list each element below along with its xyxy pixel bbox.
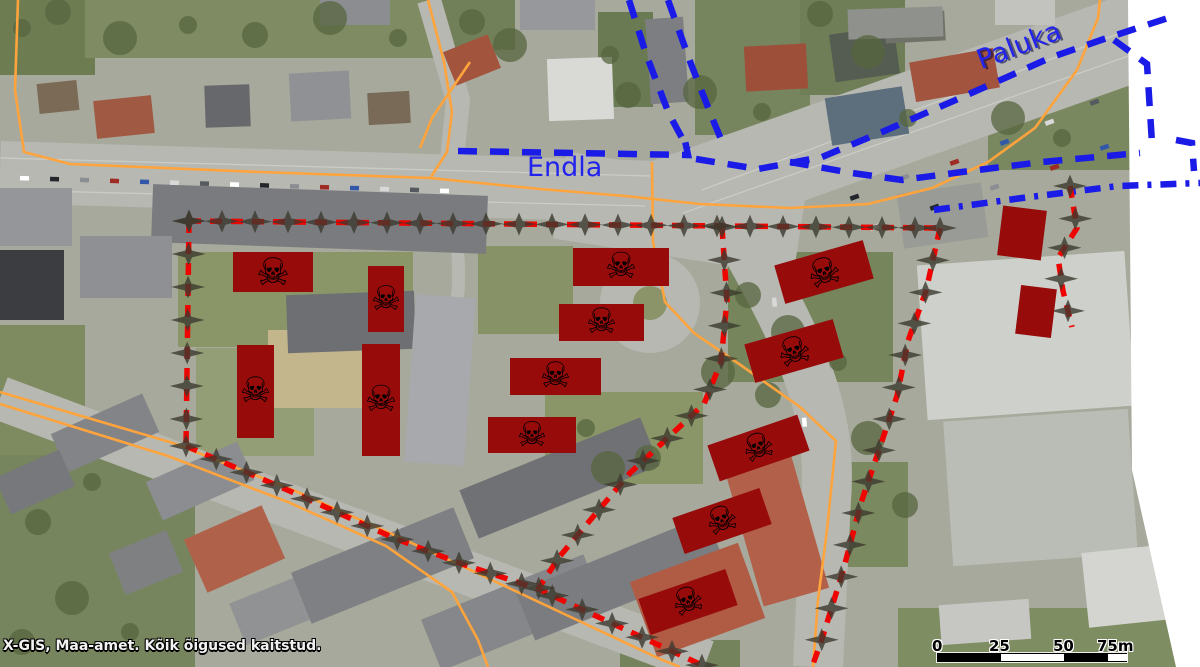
boundary-star-marker bbox=[535, 213, 569, 236]
boundary-star-marker bbox=[704, 347, 738, 370]
skull-crossbones-icon: ☠ bbox=[737, 426, 779, 471]
boundary-star-marker bbox=[370, 211, 404, 234]
skull-crossbones-icon: ☠ bbox=[240, 374, 271, 409]
boundary-star-marker bbox=[824, 565, 858, 588]
boundary-star-marker bbox=[872, 408, 906, 431]
scale-bar-segment bbox=[1064, 654, 1108, 661]
scale-bar-graphic bbox=[937, 653, 1127, 662]
boundary-star-marker bbox=[170, 342, 204, 365]
hazard-zone-marker: ☠ bbox=[368, 266, 404, 332]
scale-bar-segment bbox=[1001, 654, 1064, 661]
scale-bar-segment bbox=[938, 654, 1001, 661]
boundary-star-marker bbox=[923, 217, 957, 240]
boundary-star-marker bbox=[337, 211, 371, 234]
boundary-star-marker bbox=[833, 533, 867, 556]
boundary-star-marker bbox=[171, 276, 205, 299]
skull-crossbones-icon: ☠ bbox=[802, 249, 845, 295]
boundary-star-marker bbox=[1044, 267, 1078, 290]
boundary-star-marker bbox=[271, 210, 305, 233]
boundary-star-marker bbox=[667, 214, 701, 237]
hazard-zone-marker: ☠ bbox=[510, 358, 601, 395]
skull-crossbones-icon: ☠ bbox=[586, 305, 617, 340]
boundary-star-marker bbox=[1051, 299, 1085, 322]
boundary-star-marker bbox=[766, 215, 800, 238]
boundary-star-marker bbox=[505, 572, 539, 595]
skull-crossbones-icon: ☠ bbox=[667, 580, 709, 625]
boundary-star-marker bbox=[1058, 207, 1092, 230]
boundary-star-marker bbox=[815, 597, 849, 620]
boundary-star-marker bbox=[707, 248, 741, 271]
boundary-star-marker bbox=[916, 249, 950, 272]
boundary-star-marker bbox=[170, 375, 204, 398]
hazard-zone-marker bbox=[997, 206, 1047, 261]
boundary-star-marker bbox=[865, 216, 899, 239]
boundary-star-marker bbox=[568, 213, 602, 236]
map-viewport[interactable]: ☠☠☠☠☠☠☠☠☠☠☠☠☠ EndlaPaluka 0 25 50 75m X-… bbox=[0, 0, 1200, 667]
hazard-zone-marker: ☠ bbox=[237, 345, 274, 438]
boundary-star-marker bbox=[733, 215, 767, 238]
boundary-star-marker bbox=[897, 312, 931, 335]
boundary-star-marker bbox=[1048, 236, 1082, 259]
boundary-star-marker bbox=[601, 214, 635, 237]
boundary-star-marker bbox=[805, 628, 839, 651]
boundary-star-marker bbox=[469, 212, 503, 235]
boundary-star-marker bbox=[473, 562, 507, 585]
boundary-star-marker bbox=[882, 376, 916, 399]
boundary-star-marker bbox=[169, 408, 203, 431]
skull-crossbones-icon: ☠ bbox=[772, 328, 815, 374]
boundary-star-marker bbox=[710, 281, 744, 304]
boundary-star-marker bbox=[888, 344, 922, 367]
boundary-star-marker bbox=[304, 211, 338, 234]
boundary-star-marker bbox=[799, 215, 833, 238]
boundary-star-marker bbox=[238, 210, 272, 233]
boundary-star-marker bbox=[172, 210, 206, 233]
skull-crossbones-icon: ☠ bbox=[365, 382, 397, 418]
hazard-zone-marker: ☠ bbox=[233, 252, 313, 292]
attribution-text: X-GIS, Maa-amet. Kõik õigused kaitstud. bbox=[3, 638, 321, 654]
boundary-star-marker bbox=[705, 216, 739, 239]
boundary-star-marker bbox=[411, 540, 445, 563]
hazard-zone-marker bbox=[1015, 285, 1057, 338]
boundary-star-marker bbox=[708, 314, 742, 337]
boundary-star-marker bbox=[603, 473, 637, 496]
scale-bar: 0 25 50 75m bbox=[937, 637, 1127, 662]
skull-crossbones-icon: ☠ bbox=[517, 418, 547, 452]
boundary-star-marker bbox=[502, 213, 536, 236]
boundary-star-marker bbox=[832, 216, 866, 239]
hazard-zone-marker: ☠ bbox=[573, 248, 669, 286]
boundary-star-marker bbox=[851, 470, 885, 493]
scale-bar-segment bbox=[1108, 654, 1128, 661]
boundary-star-marker bbox=[909, 281, 943, 304]
boundary-star-marker bbox=[841, 502, 875, 525]
boundary-star-marker bbox=[172, 243, 206, 266]
street-label-endla: Endla bbox=[527, 152, 602, 183]
scale-bar-labels: 0 25 50 75m bbox=[937, 637, 1127, 653]
boundary-star-marker bbox=[540, 549, 574, 572]
skull-crossbones-icon: ☠ bbox=[256, 253, 290, 291]
boundary-star-marker bbox=[582, 498, 616, 521]
boundary-star-marker bbox=[862, 439, 896, 462]
boundary-star-marker bbox=[561, 524, 595, 547]
skull-crossbones-icon: ☠ bbox=[701, 499, 743, 544]
hazard-zone-marker: ☠ bbox=[488, 417, 576, 453]
boundary-star-marker bbox=[693, 378, 727, 401]
skull-crossbones-icon: ☠ bbox=[605, 249, 637, 285]
skull-crossbones-icon: ☠ bbox=[540, 359, 571, 394]
boundary-star-marker bbox=[171, 309, 205, 332]
boundary-star-marker bbox=[205, 210, 239, 233]
skull-crossbones-icon: ☠ bbox=[371, 282, 401, 316]
hazard-zone-marker: ☠ bbox=[559, 304, 644, 341]
boundary-star-marker bbox=[403, 212, 437, 235]
boundary-star-marker bbox=[634, 214, 668, 237]
boundary-star-marker bbox=[436, 212, 470, 235]
hazard-zone-marker: ☠ bbox=[362, 344, 400, 456]
